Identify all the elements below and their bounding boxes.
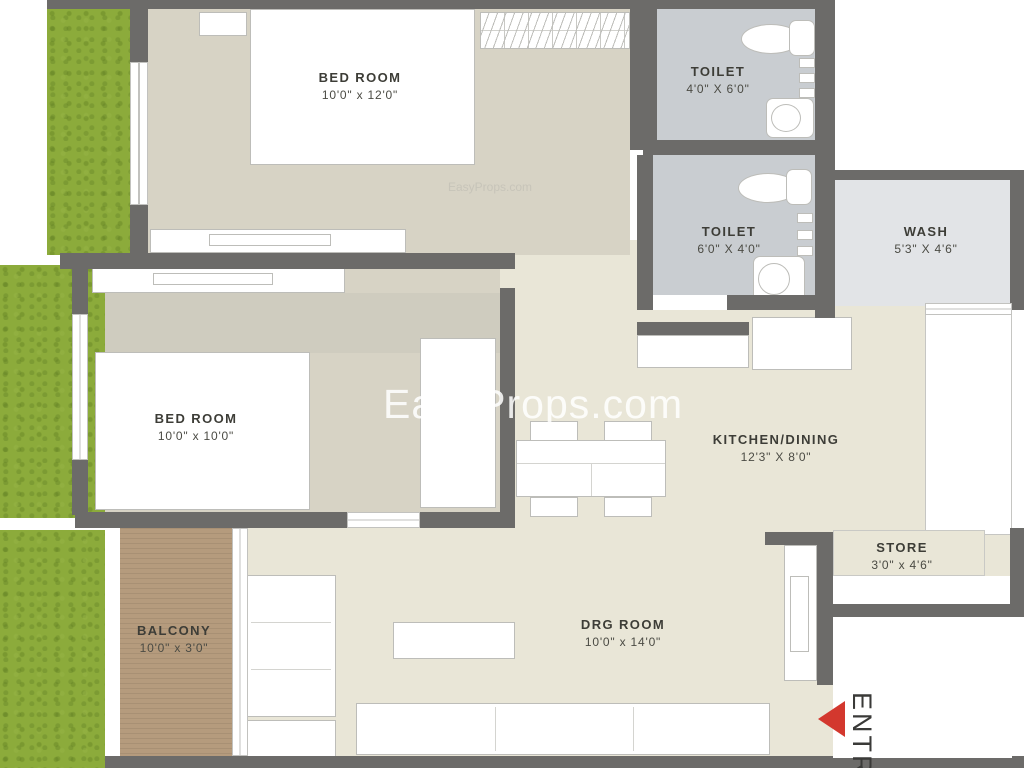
tap-icon xyxy=(797,246,813,256)
room-name: DRG ROOM xyxy=(581,617,665,632)
wash-label: WASH 5'3" X 4'6" xyxy=(894,224,957,256)
wall xyxy=(630,0,657,150)
wall xyxy=(637,322,749,335)
room-name: WASH xyxy=(894,224,957,239)
utility-platform xyxy=(925,303,1012,535)
washbasin-counter-icon xyxy=(789,20,815,56)
garden-strip-middle xyxy=(0,265,105,518)
room-dims: 3'0" x 4'6" xyxy=(871,558,932,572)
toilet2-door-opening xyxy=(653,295,727,310)
wall xyxy=(130,0,148,62)
tv-unit xyxy=(784,545,817,681)
room-dims: 4'0" X 6'0" xyxy=(686,82,749,96)
bedroom2-label: BED ROOM 10'0" x 10'0" xyxy=(155,411,238,443)
wall xyxy=(72,268,88,314)
floor-plan: BED ROOM 10'0" x 12'0" TOILET 4'0" X 6'0… xyxy=(0,0,1024,768)
room-name: STORE xyxy=(871,540,932,555)
balcony-label: BALCONY 10'0" x 3'0" xyxy=(137,623,211,655)
coffee-table xyxy=(393,622,515,659)
store-lobby xyxy=(833,576,1010,604)
store-label: STORE 3'0" x 4'6" xyxy=(871,540,932,572)
watermark: EasyProps.com xyxy=(383,381,683,428)
room-dims: 12'3" X 8'0" xyxy=(713,450,840,464)
kitchen-counter-left xyxy=(637,335,749,368)
window-utility-top xyxy=(925,303,1012,315)
room-dims: 10'0" x 3'0" xyxy=(137,641,211,655)
toilet2-label: TOILET 6'0" X 4'0" xyxy=(697,224,760,256)
wall xyxy=(815,0,835,318)
tv-icon xyxy=(790,576,809,652)
tap-icon xyxy=(799,88,815,98)
wall xyxy=(637,155,653,310)
wall xyxy=(72,460,88,515)
wall xyxy=(643,140,817,155)
wall xyxy=(47,0,818,9)
kitchen-counter-right xyxy=(752,317,852,370)
wall xyxy=(817,545,833,685)
room-dims: 5'3" X 4'6" xyxy=(894,242,957,256)
room-name: BALCONY xyxy=(137,623,211,638)
wall xyxy=(1010,170,1024,310)
dining-chair xyxy=(530,497,578,517)
room-name: KITCHEN/DINING xyxy=(713,432,840,447)
window-bedroom2-bottom xyxy=(347,512,420,528)
garden-strip-bottom xyxy=(0,530,105,768)
room-name: TOILET xyxy=(697,224,760,239)
garden-strip-top xyxy=(47,9,130,255)
wall xyxy=(727,295,817,310)
dining-chair xyxy=(604,497,652,517)
dresser-mirror-icon xyxy=(209,234,331,246)
kitchen-label: KITCHEN/DINING 12'3" X 8'0" xyxy=(713,432,840,464)
tap-icon xyxy=(797,230,813,240)
entry-label: ENTRY xyxy=(846,692,877,768)
room-name: BED ROOM xyxy=(319,70,402,85)
room-dims: 10'0" x 14'0" xyxy=(581,635,665,649)
toilet1-label: TOILET 4'0" X 6'0" xyxy=(686,64,749,96)
window-bedroom2-left xyxy=(72,314,88,460)
sofa-three-seat-horizontal xyxy=(356,703,770,755)
entry-arrow-icon xyxy=(818,701,845,737)
wall xyxy=(130,205,148,255)
window-bedroom1-left xyxy=(130,62,148,205)
dresser-bedroom1 xyxy=(150,229,406,253)
wall xyxy=(833,604,1012,617)
tap-icon xyxy=(799,58,815,68)
wall xyxy=(1010,528,1024,617)
wall xyxy=(765,532,833,545)
wall xyxy=(420,512,515,528)
side-table xyxy=(246,720,336,758)
wall xyxy=(75,512,347,528)
wall xyxy=(60,253,515,269)
balcony-door-window xyxy=(232,528,248,756)
watermark-ghost: EasyProps.com xyxy=(448,180,532,194)
nightstand-bedroom1 xyxy=(199,12,247,36)
wall xyxy=(835,170,1012,180)
shelf-mirror-icon xyxy=(153,273,273,285)
tap-icon xyxy=(797,213,813,223)
room-dims: 10'0" x 10'0" xyxy=(155,429,238,443)
bedroom1-label: BED ROOM 10'0" x 12'0" xyxy=(319,70,402,102)
room-name: TOILET xyxy=(686,64,749,79)
drg-room-label: DRG ROOM 10'0" x 14'0" xyxy=(581,617,665,649)
dining-table xyxy=(516,440,666,497)
tap-icon xyxy=(799,73,815,83)
washbasin-counter-icon xyxy=(786,169,812,205)
room-name: BED ROOM xyxy=(155,411,238,426)
wardrobe-bedroom1 xyxy=(480,12,630,49)
room-dims: 10'0" x 12'0" xyxy=(319,88,402,102)
room-dims: 6'0" X 4'0" xyxy=(697,242,760,256)
sofa-three-seat-vertical xyxy=(246,575,336,717)
toilet-seat-icon xyxy=(766,98,814,138)
shelf-bedroom2 xyxy=(92,268,345,293)
